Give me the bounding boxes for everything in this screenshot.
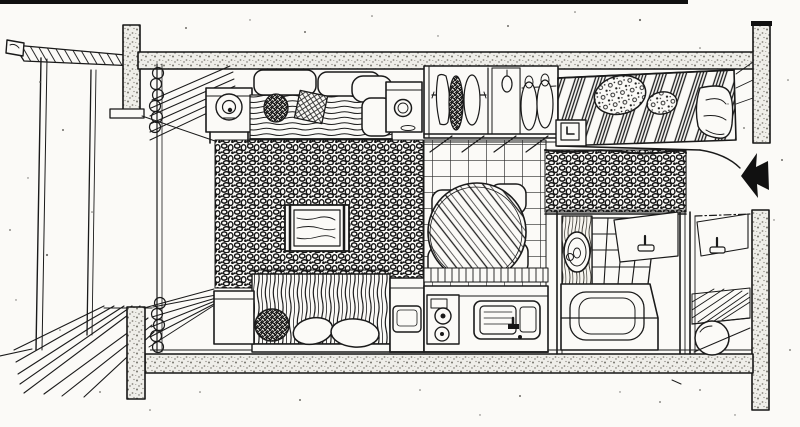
sketch-canvas [0, 0, 800, 427]
footboard-cushion [696, 86, 732, 138]
hanging-garment-dark [449, 76, 463, 130]
hall-mat [545, 150, 686, 212]
crosshatch-pillow [294, 90, 327, 123]
floorplan-sketch [0, 0, 800, 427]
wall-bottom [145, 354, 753, 373]
wall-column-foot [110, 109, 144, 118]
patterned-pillow [255, 309, 289, 341]
hanging-garment [464, 75, 480, 125]
wall-column-bottom-right [752, 210, 769, 410]
room-hall [545, 150, 686, 212]
hanging-shirt [521, 82, 537, 130]
nightstand-cube [214, 291, 254, 344]
dark-pillow [264, 94, 288, 122]
under-counter-appliance [390, 278, 424, 352]
sofa [250, 70, 392, 139]
kitchen-counter [390, 268, 548, 352]
hanging-shirt [537, 80, 553, 128]
balcony-eave-cap [6, 40, 24, 56]
dining-set [428, 183, 528, 281]
kitchen-sink [474, 301, 540, 339]
hanging-garment [436, 75, 449, 125]
stove [427, 295, 459, 344]
wall-column-top-right [753, 25, 770, 143]
wall-column-top-left [123, 25, 140, 117]
tv-set [285, 205, 349, 251]
side-table [386, 82, 422, 132]
nightstand-clock [556, 120, 586, 146]
scan-edge-bar [0, 0, 688, 4]
bed-lower [252, 270, 390, 352]
round-lamp [216, 94, 242, 120]
round-table [428, 183, 526, 281]
wall-column-bottom-left [127, 307, 145, 399]
bathtub [561, 284, 658, 350]
